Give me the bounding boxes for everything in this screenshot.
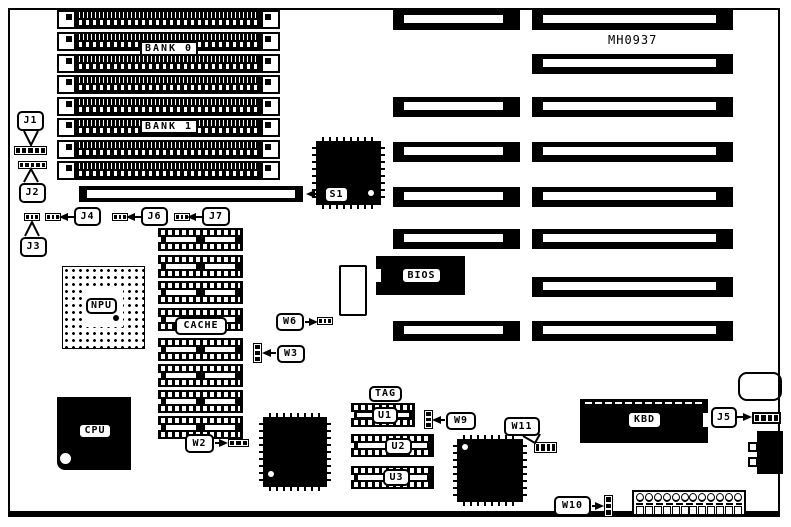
qfp-chip — [457, 439, 523, 502]
w9-label: W9 — [446, 412, 476, 430]
expansion-slot — [532, 277, 733, 297]
expansion-slot — [532, 97, 733, 117]
simm-contacts — [76, 161, 261, 180]
simm-clip-icon — [57, 10, 76, 29]
j2-label: J2 — [19, 183, 46, 203]
simm-clip-icon — [57, 118, 76, 137]
simm-clip-icon — [57, 75, 76, 94]
cache-chip — [158, 281, 243, 304]
simm-clip-icon — [57, 54, 76, 73]
simm-clip-icon — [57, 140, 76, 159]
expansion-slot — [393, 142, 520, 162]
chip-notch-icon — [703, 413, 708, 427]
kbd-socket-edge — [585, 402, 703, 404]
w6-label: W6 — [276, 313, 304, 331]
cache-chip — [158, 338, 243, 361]
w6-jumper — [317, 317, 333, 325]
power-connector — [632, 490, 746, 516]
expansion-slot — [532, 229, 733, 249]
w10-label: W10 — [554, 496, 591, 516]
j5-label: J5 — [711, 407, 737, 428]
j3-jumper — [24, 213, 40, 221]
bios-label: BIOS — [401, 267, 442, 284]
j2-jumper — [18, 161, 47, 169]
w2-jumper — [228, 439, 249, 447]
expansion-slot — [532, 321, 733, 341]
simm-contacts — [76, 54, 261, 73]
cpu-label: CPU — [78, 423, 112, 439]
part-number: MH0937 — [608, 33, 657, 47]
crystal-socket — [339, 265, 367, 316]
cache-chip — [158, 390, 243, 413]
simm-socket — [57, 54, 280, 73]
simm-clip-icon — [261, 97, 280, 116]
pin1-dot-icon — [113, 315, 119, 321]
simm-contacts — [76, 97, 261, 116]
simm-clip-icon — [261, 32, 280, 51]
simm-clip-icon — [57, 97, 76, 116]
cache-chip — [158, 364, 243, 387]
simm-clip-icon — [261, 140, 280, 159]
w10-jumper — [604, 495, 613, 517]
expansion-slot — [393, 10, 520, 30]
chip-notch-icon — [376, 269, 381, 282]
j1-jumper — [14, 146, 47, 155]
keyboard-connector — [757, 431, 783, 474]
bank0-label: BANK 0 — [140, 41, 198, 56]
bank1-label: BANK 1 — [140, 119, 198, 134]
j1-label: J1 — [17, 111, 44, 131]
connector-tab-icon — [748, 457, 758, 467]
simm-clip-icon — [261, 75, 280, 94]
expansion-slot — [532, 187, 733, 207]
qfp-chip — [263, 417, 327, 487]
simm-socket — [57, 140, 280, 159]
j6-jumper — [112, 213, 128, 221]
simm-socket — [57, 10, 280, 29]
j5-jumper — [752, 412, 781, 424]
w9-jumper — [424, 410, 433, 429]
simm-clip-icon — [57, 161, 76, 180]
expansion-slot — [393, 187, 520, 207]
motherboard-diagram: BANK 0 BANK 1 MH0937 S1 J1 J2 J3 J4 J6 J… — [0, 0, 791, 527]
simm-clip-icon — [261, 118, 280, 137]
tag-label: TAG — [369, 386, 402, 402]
battery-outline — [738, 372, 782, 401]
u1-label: U1 — [372, 407, 398, 424]
u2-label: U2 — [385, 438, 412, 455]
simm-socket — [57, 97, 280, 116]
power-divider — [636, 503, 742, 505]
power-pin-row — [634, 492, 744, 502]
j7-label: J7 — [202, 207, 230, 226]
j4-jumper — [45, 213, 61, 221]
w11-label: W11 — [504, 417, 540, 436]
w11-jumper — [534, 442, 557, 453]
simm-clip-icon — [261, 161, 280, 180]
expansion-slot — [532, 142, 733, 162]
connector-tab-icon — [748, 442, 758, 452]
j6-label: J6 — [141, 207, 168, 226]
simm-clip-icon — [261, 10, 280, 29]
simm-clip-icon — [57, 32, 76, 51]
expansion-slot — [393, 97, 520, 117]
w3-label: W3 — [277, 345, 305, 363]
power-terminal-row — [634, 506, 744, 516]
expansion-slot — [532, 10, 733, 30]
expansion-slot — [393, 321, 520, 341]
w2-label: W2 — [185, 434, 214, 453]
w3-jumper — [253, 343, 262, 363]
kbd-label: KBD — [627, 411, 662, 429]
pin1-dot-icon — [60, 453, 71, 464]
j3-label: J3 — [20, 237, 47, 257]
j4-label: J4 — [74, 207, 101, 226]
simm-socket — [57, 161, 280, 180]
cache-chip — [158, 255, 243, 278]
cache-chip — [158, 228, 243, 251]
expansion-slot — [393, 229, 520, 249]
expansion-slot — [532, 54, 733, 74]
simm-contacts — [76, 140, 261, 159]
simm-socket — [57, 75, 280, 94]
s1-label: S1 — [324, 186, 349, 203]
npu-label: NPU — [86, 298, 117, 314]
simm-contacts — [76, 10, 261, 29]
edge-connector-bar — [79, 186, 303, 202]
simm-clip-icon — [261, 54, 280, 73]
simm-contacts — [76, 75, 261, 94]
cache-label: CACHE — [175, 317, 227, 335]
j7-jumper — [174, 213, 190, 221]
u3-label: U3 — [383, 469, 410, 486]
